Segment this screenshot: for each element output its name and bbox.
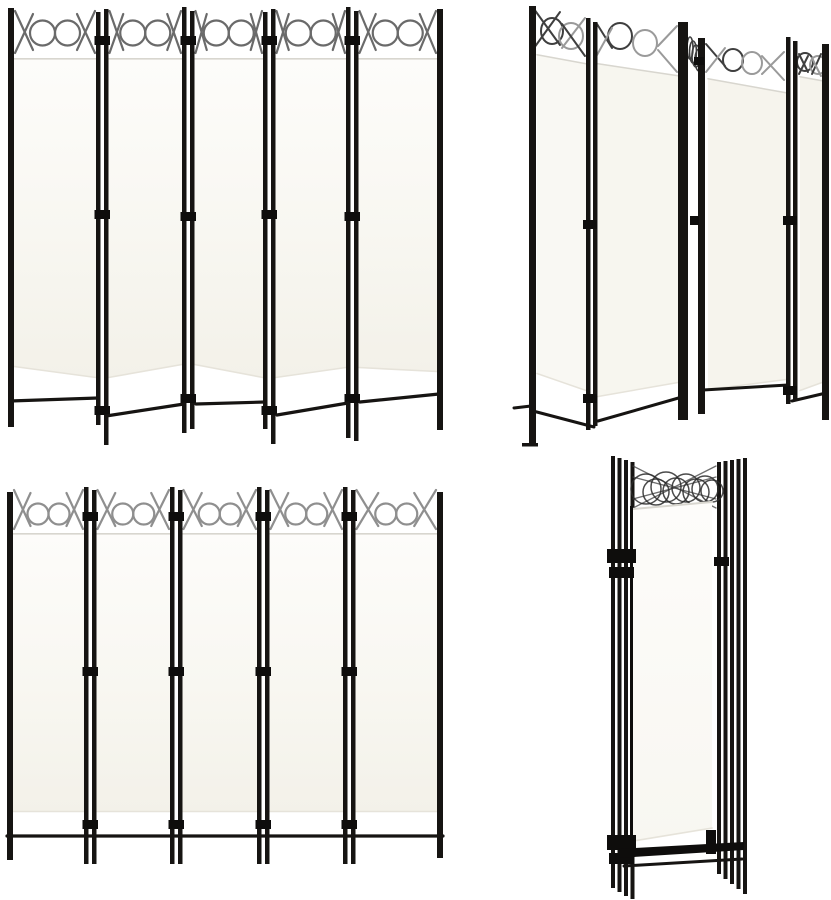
frame-pole <box>7 492 13 860</box>
hinge-block <box>83 820 99 829</box>
decor-wire <box>534 9 560 45</box>
fabric-panel <box>109 58 183 378</box>
fabric-panel <box>800 76 822 391</box>
foot-bar <box>533 411 594 427</box>
hinge-block <box>181 212 197 221</box>
hinge-block <box>262 406 278 415</box>
fabric-panel <box>537 54 586 391</box>
frame-pole <box>263 12 268 429</box>
room-divider-product-views <box>0 0 831 900</box>
view-folded-stack <box>607 456 747 899</box>
decor-wire <box>658 50 677 72</box>
frame-pole <box>743 458 747 894</box>
hinge-block <box>262 210 278 219</box>
hinge-block <box>342 667 358 676</box>
decor-circle <box>608 23 632 49</box>
frame-pole <box>678 22 688 420</box>
decor-wire <box>762 56 784 80</box>
hinge-block <box>345 36 361 45</box>
decor-wire <box>14 490 31 526</box>
decor-circle <box>145 21 170 46</box>
decor-circle <box>199 504 220 525</box>
hinge-block <box>256 820 272 829</box>
hinge-block <box>609 567 634 578</box>
frame-pole <box>346 7 351 438</box>
decor-wire <box>324 490 342 526</box>
view-angled <box>514 6 829 447</box>
fabric-panel <box>97 533 171 812</box>
frame-pole <box>178 490 183 864</box>
hinge-block <box>169 820 185 829</box>
hinge-block <box>607 835 636 850</box>
fabric-panel <box>13 533 84 812</box>
fabric-panel <box>598 63 678 397</box>
decor-circle <box>49 504 70 525</box>
decor-wire <box>357 490 379 526</box>
hinge-block <box>169 512 185 521</box>
frame-pole <box>611 456 615 888</box>
hinge-block <box>342 512 358 521</box>
frame-pole <box>437 9 443 430</box>
hinge-block <box>690 216 699 225</box>
hinge-block <box>783 386 797 395</box>
frame-pole <box>529 6 536 446</box>
hinge-block <box>694 57 704 65</box>
decor-circle <box>311 21 336 46</box>
hinge-block <box>83 512 99 521</box>
frame-pole <box>698 38 705 414</box>
fabric-panel <box>14 58 96 378</box>
foot-bar <box>598 397 682 421</box>
hinge-block <box>714 557 729 566</box>
frame-pole <box>618 458 622 892</box>
view-front-flat <box>7 487 443 864</box>
decor-circle <box>112 504 133 525</box>
foot-bar <box>277 403 348 415</box>
fabric-panel <box>270 533 344 812</box>
decor-circle <box>398 21 423 46</box>
hinge-block <box>181 36 197 45</box>
frame-pole <box>437 492 443 858</box>
decor-wire <box>706 44 725 66</box>
decor-circle <box>229 21 254 46</box>
fabric-panel <box>708 78 786 390</box>
fabric-panel <box>359 58 438 372</box>
hinge-block <box>256 667 272 676</box>
decor-circle <box>55 21 80 46</box>
frame-pole <box>265 490 270 864</box>
fabric-panel <box>633 501 712 842</box>
decor-circle <box>28 504 49 525</box>
decor-circle <box>396 504 417 525</box>
frame-pole <box>354 11 359 441</box>
decor-wire <box>238 490 256 526</box>
decor-circle <box>285 504 306 525</box>
foot-bar <box>10 398 98 401</box>
fabric-panel <box>183 533 258 812</box>
decor-circle <box>375 504 396 525</box>
hinge-block <box>583 394 597 403</box>
decor-circle <box>373 21 398 46</box>
hinge-block <box>83 667 99 676</box>
frame-pole <box>822 44 829 420</box>
hinge-block <box>262 36 278 45</box>
hinge-block <box>583 220 597 229</box>
hinge-block <box>345 212 361 221</box>
decor-wire <box>98 490 116 526</box>
decor-circle <box>120 21 145 46</box>
decor-circle <box>633 30 657 56</box>
decor-wire <box>184 490 202 526</box>
decor-wire <box>658 26 677 46</box>
hinge-block <box>256 512 272 521</box>
hinge-block <box>169 667 185 676</box>
decor-wire <box>67 490 84 526</box>
foot-bar <box>360 394 439 402</box>
decor-wire <box>151 490 169 526</box>
decor-wire <box>762 52 784 74</box>
decor-circle <box>742 52 762 74</box>
decor-wire <box>271 490 289 526</box>
foot-bar <box>106 404 184 416</box>
fabric-panel <box>276 58 347 378</box>
decor-circle <box>220 504 241 525</box>
hinge-block <box>95 210 111 219</box>
foot-bar <box>514 406 531 408</box>
frame-pole <box>724 461 728 879</box>
frame-pole <box>271 9 276 444</box>
decor-circle <box>30 21 55 46</box>
view-front-zigzag <box>8 7 443 445</box>
frame-pole <box>730 460 734 884</box>
hinge-block <box>342 820 358 829</box>
frame-pole <box>92 490 97 864</box>
fabric-panel <box>195 58 264 378</box>
foot-bar <box>522 443 538 447</box>
frame-pole <box>8 8 14 427</box>
decor-circle <box>133 504 154 525</box>
decor-circle <box>723 49 743 71</box>
decor-circle <box>306 504 327 525</box>
frame-pole <box>717 462 721 874</box>
hinge-block <box>95 36 111 45</box>
product-gallery <box>0 0 831 900</box>
frame-pole <box>737 459 741 889</box>
hinge-block <box>607 549 636 563</box>
hinge-block <box>783 216 797 225</box>
decor-circle <box>204 21 229 46</box>
decor-wire <box>414 490 436 526</box>
hinge-block <box>181 394 197 403</box>
frame-pole <box>351 490 356 864</box>
fabric-panel <box>356 533 438 812</box>
foot-bar <box>196 402 265 404</box>
frame-pole <box>624 460 628 896</box>
decor-circle <box>286 21 311 46</box>
frame-pole <box>104 9 109 445</box>
hinge-block <box>95 406 111 415</box>
